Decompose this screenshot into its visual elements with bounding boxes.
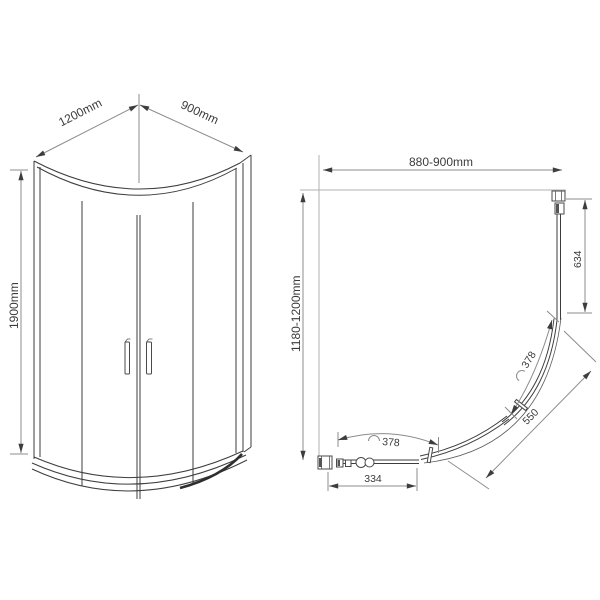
front-view: 1200mm 900mm 1900mm (7, 94, 251, 499)
left-post (34, 161, 40, 459)
arc-symbol (369, 436, 380, 441)
base-mid-curve (32, 455, 246, 484)
plan-view: 880-900mm 1180-1200mm 634 378 (289, 155, 596, 491)
dim-front-depth: 900mm (140, 98, 243, 152)
door-handle-left (125, 339, 131, 374)
dim-door-arc-bottom: 378 (338, 432, 439, 453)
top-frame-outer-curve (34, 161, 240, 189)
door-handle-right (147, 339, 153, 374)
front-view-dimensions: 1200mm 900mm 1900mm (7, 94, 243, 454)
dim-bottom-panel: 334 (328, 468, 417, 491)
top-frame-inner-curve (37, 167, 237, 195)
track-outer-arc (424, 318, 561, 463)
front-depth-label: 900mm (179, 98, 221, 128)
door-arc-bottom-label: 378 (382, 436, 400, 449)
arc-symbol (514, 368, 524, 380)
fixed-panel-right (557, 203, 561, 320)
plan-view-dimensions: 880-900mm 1180-1200mm 634 378 (289, 155, 596, 491)
side-panel-label: 634 (572, 250, 584, 268)
door-handle-bottom-plan (427, 447, 433, 462)
right-depth-edge (240, 155, 251, 452)
technical-drawing: 1200mm 900mm 1900mm (0, 0, 600, 600)
dim-plan-width: 880-900mm (323, 155, 562, 170)
dim-front-height: 1900mm (7, 170, 28, 454)
wall-bracket-bottom (318, 456, 351, 469)
drawing-canvas: 1200mm 900mm 1900mm (0, 0, 600, 600)
right-post (236, 163, 243, 453)
door-rollers (356, 458, 374, 468)
glass-dividers (82, 201, 193, 499)
front-width-label: 1200mm (56, 96, 104, 130)
dim-radius: 550 (448, 331, 596, 489)
wall-bracket-top (552, 191, 565, 214)
dim-front-width: 1200mm (36, 96, 138, 157)
plan-width-label: 880-900mm (409, 155, 473, 169)
front-height-label: 1900mm (7, 282, 21, 329)
dim-side-panel: 634 (566, 199, 592, 313)
front-view-enclosure (32, 155, 251, 499)
base-top-curve (34, 451, 243, 478)
dim-plan-depth: 1180-1200mm (289, 193, 303, 460)
bottom-panel-label: 334 (364, 473, 382, 485)
plan-depth-label: 1180-1200mm (289, 276, 303, 353)
